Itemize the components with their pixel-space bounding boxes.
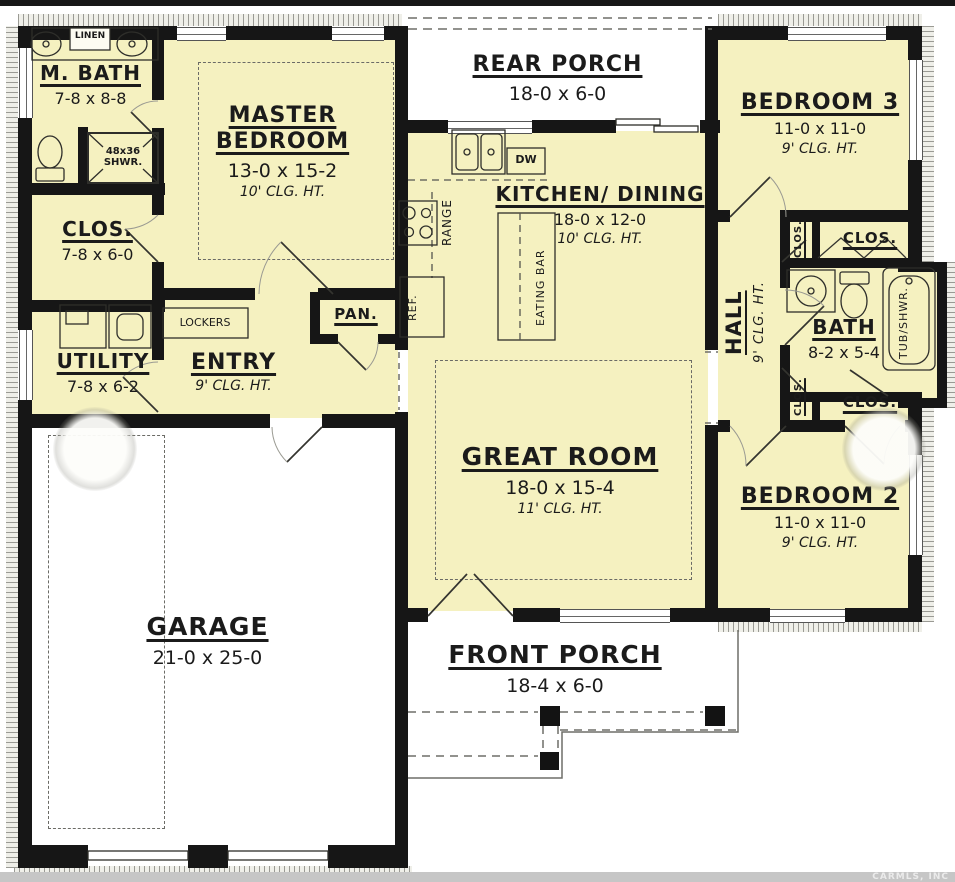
room-label-bedroom2: BEDROOM 2 11-0 x 11-0 9' CLG. HT. xyxy=(725,484,915,551)
bedroom2-dims: 11-0 x 11-0 xyxy=(725,514,915,533)
eating-bar-label: EATING BAR xyxy=(534,240,549,335)
entry-name: ENTRY xyxy=(166,350,301,376)
room-label-great-room: GREAT ROOM 18-0 x 15-4 11' CLG. HT. xyxy=(430,442,690,517)
hall-label: HALL xyxy=(722,278,746,368)
bedroom3-clg: 9' CLG. HT. xyxy=(725,141,915,158)
shower-size: 48x36 xyxy=(93,146,153,157)
pan-name: PAN. xyxy=(318,306,394,324)
room-label-utility: UTILITY 7-8 x 6-2 xyxy=(42,350,164,396)
hall-clg-label: 9' CLG. HT. xyxy=(752,276,769,368)
garage-dims: 21-0 x 25-0 xyxy=(120,647,295,669)
room-label-kitchen: KITCHEN/ DINING 18-0 x 12-0 10' CLG. HT. xyxy=(450,183,750,248)
room-label-bath: BATH 8-2 x 5-4 xyxy=(788,316,900,362)
bath-dims: 8-2 x 5-4 xyxy=(788,344,900,363)
floor-plan: M. BATH 7-8 x 8-8 LINEN 48x36 SHWR. MAST… xyxy=(0,0,955,882)
shower-label: 48x36 SHWR. xyxy=(93,146,153,168)
tub-shwr-label: TUB/SHWR. xyxy=(897,282,914,364)
clos-top-label: CLOS. xyxy=(830,230,910,248)
shower-word: SHWR. xyxy=(93,157,153,168)
top-border-bar xyxy=(0,0,955,6)
clos-top-v-label: CLOS. xyxy=(793,216,808,262)
master-bedroom-clg: 10' CLG. HT. xyxy=(185,184,380,201)
linen-label: LINEN xyxy=(70,32,110,42)
room-label-rear-porch: REAR PORCH 18-0 x 6-0 xyxy=(410,52,705,105)
dw-label: DW xyxy=(508,154,544,166)
clos-master-name: CLOS. xyxy=(40,218,155,242)
bedroom3-dims: 11-0 x 11-0 xyxy=(725,120,915,139)
room-label-m-bath: M. BATH 7-8 x 8-8 xyxy=(28,62,153,108)
kitchen-clg: 10' CLG. HT. xyxy=(450,231,750,248)
ref-label: REF. xyxy=(406,286,421,330)
room-label-pan: PAN. xyxy=(318,306,394,324)
bedroom3-name: BEDROOM 3 xyxy=(725,90,915,116)
lockers-label: LOCKERS xyxy=(165,317,245,329)
great-room-clg: 11' CLG. HT. xyxy=(430,501,690,518)
bath-name: BATH xyxy=(788,316,900,340)
watermark-ghost-left xyxy=(53,407,137,491)
kitchen-dims: 18-0 x 12-0 xyxy=(450,211,750,230)
entry-clg: 9' CLG. HT. xyxy=(166,378,301,395)
m-bath-dims: 7-8 x 8-8 xyxy=(28,90,153,109)
master-bedroom-name: MASTER BEDROOM xyxy=(185,103,380,155)
range-label: RANGE xyxy=(440,196,458,250)
kitchen-name: KITCHEN/ DINING xyxy=(450,183,750,207)
m-bath-name: M. BATH xyxy=(28,62,153,86)
clos-top-name: CLOS. xyxy=(830,230,910,248)
room-label-master-bedroom: MASTER BEDROOM 13-0 x 15-2 10' CLG. HT. xyxy=(185,103,380,201)
room-label-garage: GARAGE 21-0 x 25-0 xyxy=(120,612,295,669)
utility-name: UTILITY xyxy=(42,350,164,374)
clos-bottom-v-label: CLOS. xyxy=(793,374,808,420)
room-label-clos-master: CLOS. 7-8 x 6-0 xyxy=(40,218,155,264)
watermark-text: CARMLS, INC xyxy=(872,872,949,882)
watermark-ghost-right xyxy=(842,407,926,491)
front-porch-dims: 18-4 x 6-0 xyxy=(410,675,700,697)
watermark-bar: CARMLS, INC xyxy=(0,872,955,882)
great-room-name: GREAT ROOM xyxy=(430,442,690,472)
bedroom2-clg: 9' CLG. HT. xyxy=(725,535,915,552)
clos-master-dims: 7-8 x 6-0 xyxy=(40,246,155,265)
rear-porch-name: REAR PORCH xyxy=(410,52,705,78)
front-porch-name: FRONT PORCH xyxy=(410,640,700,670)
garage-name: GARAGE xyxy=(120,612,295,642)
master-bedroom-dims: 13-0 x 15-2 xyxy=(185,160,380,182)
room-label-bedroom3: BEDROOM 3 11-0 x 11-0 9' CLG. HT. xyxy=(725,90,915,157)
utility-dims: 7-8 x 6-2 xyxy=(42,378,164,397)
room-label-front-porch: FRONT PORCH 18-4 x 6-0 xyxy=(410,640,700,697)
room-label-entry: ENTRY 9' CLG. HT. xyxy=(166,350,301,394)
rear-porch-dims: 18-0 x 6-0 xyxy=(410,83,705,105)
great-room-dims: 18-0 x 15-4 xyxy=(430,477,690,499)
